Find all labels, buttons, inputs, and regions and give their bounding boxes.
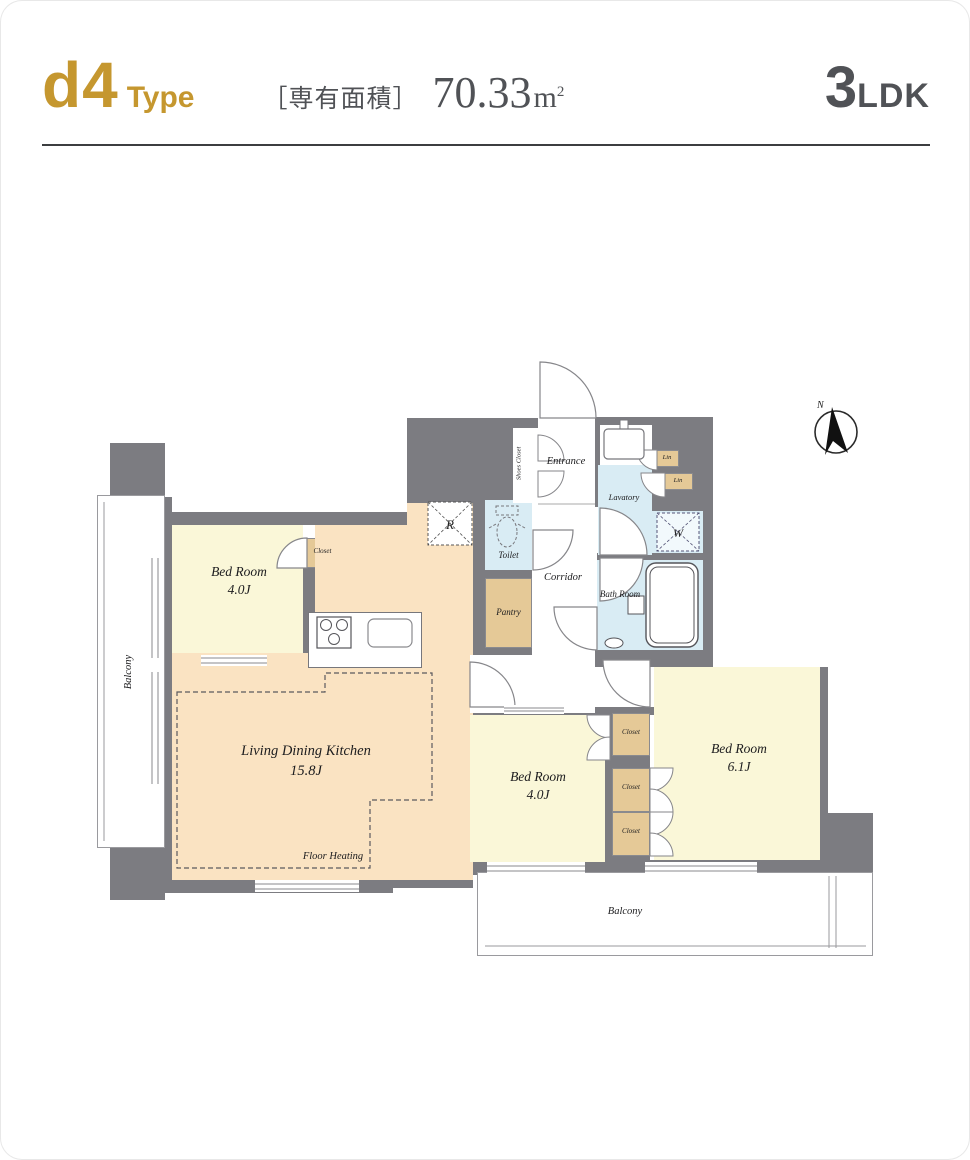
- ldk-door: [470, 662, 515, 707]
- ldk-name: Living Dining Kitchen: [200, 742, 412, 762]
- bedroom-left-label: Bed Room 4.0J: [175, 563, 303, 599]
- floor-heating-label: Floor Heating: [277, 850, 389, 864]
- closet-3-label: Closet: [612, 827, 650, 836]
- closet1-door-bottom: [587, 737, 610, 760]
- window-bedroom-left-bottom: [201, 655, 267, 666]
- kitchen-sink: [368, 619, 412, 647]
- toilet-fixture: [489, 506, 525, 547]
- compass: N: [815, 400, 857, 455]
- lavatory-label: Lavatory: [596, 492, 652, 503]
- lavatory-door: [600, 508, 647, 555]
- bedroom-center-name: Bed Room: [472, 768, 604, 786]
- entrance-label: Entrance: [534, 455, 598, 469]
- closet2-door-bottom: [650, 789, 673, 812]
- toilet-door: [533, 530, 573, 570]
- window-left-ldk: [149, 672, 161, 784]
- floor-plan-page: d4 Type ［専有面積］ 70.33 m2 3 LDK: [0, 0, 970, 1160]
- window-left-bedroom: [149, 558, 161, 658]
- plan-overlay: R W: [0, 0, 970, 1160]
- corridor-door: [554, 607, 597, 650]
- bedroom-left-size: 4.0J: [175, 581, 303, 599]
- washbasin: [604, 420, 644, 459]
- lin-label-1: Lin: [655, 454, 679, 463]
- closet-left-label: Closet: [303, 547, 342, 556]
- lin-label-2: Lin: [663, 477, 693, 486]
- closet3-door-top: [650, 812, 673, 835]
- window-bedroom-center-bottom: [487, 862, 585, 874]
- pantry-label: Pantry: [485, 606, 532, 618]
- refrigerator-space: R: [428, 502, 472, 545]
- bedroom-left-name: Bed Room: [175, 563, 303, 581]
- shoes-closet-label: Shoes Closet: [516, 421, 525, 505]
- shoes-closet-door-bottom: [538, 471, 564, 497]
- bedroom-center-label: Bed Room 4.0J: [472, 768, 604, 804]
- bath-label: Bath Room: [597, 588, 643, 600]
- entrance-door: [540, 362, 596, 418]
- bedroom-right-size: 6.1J: [668, 758, 810, 776]
- balcony-bottom-label: Balcony: [560, 905, 690, 919]
- window-bedroom-right-bottom: [645, 862, 757, 874]
- stove: [317, 617, 351, 648]
- compass-north-label: N: [816, 400, 825, 411]
- corridor-label: Corridor: [528, 571, 598, 585]
- bedroom-right-door: [603, 660, 650, 707]
- closet-2-label: Closet: [612, 783, 650, 792]
- washer-symbol: W: [673, 526, 684, 540]
- closet3-door-bottom: [650, 833, 673, 856]
- toilet-label: Toilet: [485, 549, 532, 561]
- sliding-door-bedroom-center: [504, 705, 564, 714]
- bedroom-center-size: 4.0J: [472, 786, 604, 804]
- refrigerator-symbol: R: [445, 517, 454, 532]
- balcony-left-label: Balcony: [122, 632, 136, 712]
- closet-1-label: Closet: [612, 728, 650, 737]
- washer-space: W: [657, 513, 699, 551]
- bedroom-right-name: Bed Room: [668, 740, 810, 758]
- bedroom-right-label: Bed Room 6.1J: [668, 740, 810, 776]
- window-ldk-bottom: [255, 880, 359, 892]
- closet1-door-top: [587, 715, 610, 738]
- ldk-label: Living Dining Kitchen 15.8J: [200, 742, 412, 781]
- ldk-size: 15.8J: [200, 762, 412, 782]
